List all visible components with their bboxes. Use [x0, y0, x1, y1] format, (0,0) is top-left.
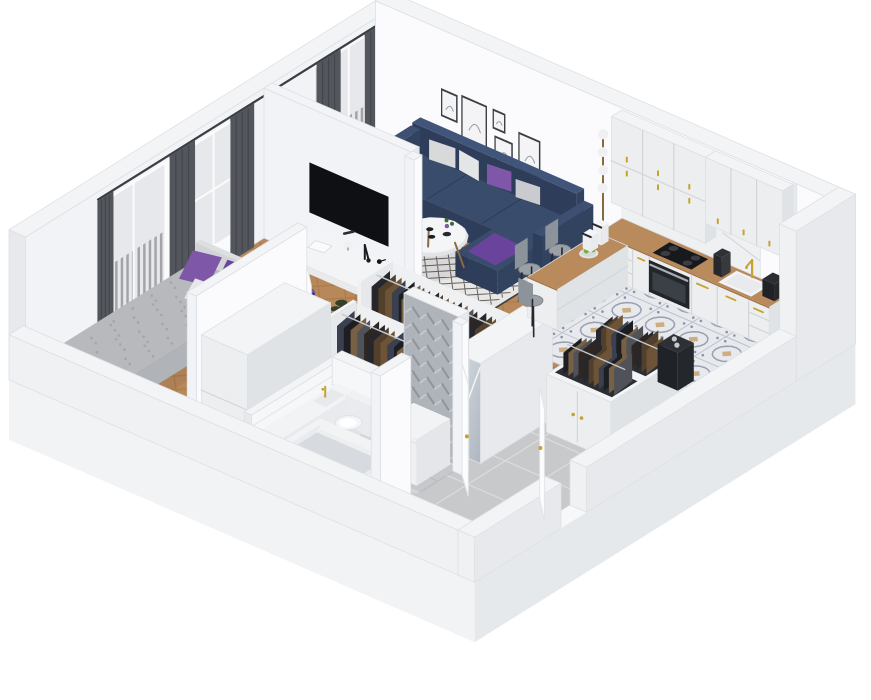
storage-bin	[658, 334, 694, 391]
bathroom-door	[462, 363, 469, 496]
floorplan-svg	[0, 0, 871, 700]
apartment-3d-render	[0, 0, 871, 700]
knife-block	[714, 248, 731, 277]
